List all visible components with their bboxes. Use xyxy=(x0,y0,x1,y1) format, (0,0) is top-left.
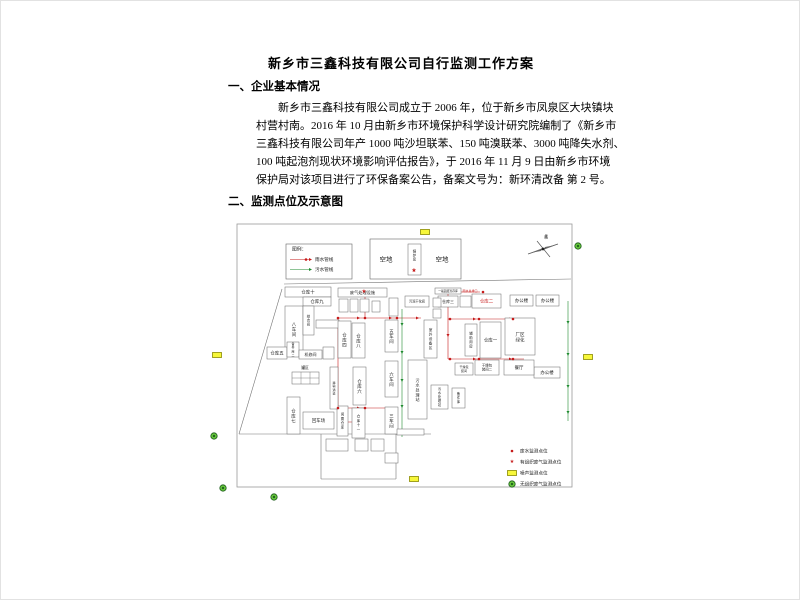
gas-marker-icon xyxy=(577,245,579,247)
dot-marker-icon xyxy=(364,407,367,410)
pipe-legend-label: 污水管线 xyxy=(315,266,334,273)
building-label: 办公楼 xyxy=(515,297,529,304)
building-label: 仓库九 xyxy=(310,298,324,305)
building-label: 污泥干化间 xyxy=(409,299,425,304)
building-label: 六车间 xyxy=(389,370,394,387)
building-label: 备件库二 xyxy=(291,341,294,357)
building-label: 仓库八 xyxy=(356,332,361,348)
gas-marker-icon xyxy=(273,496,275,498)
building-label: 五车间 xyxy=(389,328,394,344)
point-legend-label: 噪声监测点位 xyxy=(520,470,548,477)
building-label: 三车间 xyxy=(389,413,394,429)
building-box xyxy=(371,439,384,451)
building-box xyxy=(316,320,339,328)
point-legend-label: 有组织废气监测点位 xyxy=(520,459,562,466)
dot-marker-icon xyxy=(482,291,485,294)
dot-marker-icon xyxy=(512,358,515,361)
point-legend-label: 废水监测点位 xyxy=(520,448,548,455)
building-box xyxy=(326,439,348,451)
building-label: 餐厅 xyxy=(515,364,524,371)
building-label: 仓库一 xyxy=(484,337,498,344)
map-label: 北 xyxy=(544,234,548,240)
empty-lot-label: 空地 xyxy=(436,255,450,264)
building-label: 室外设备区 xyxy=(429,327,433,350)
gas-marker-icon xyxy=(213,435,215,437)
document-page: 新乡市三鑫科技有限公司自行监测工作方案 一、企业基本情况 新乡市三鑫科技有限公司… xyxy=(0,0,800,600)
dot-marker-icon xyxy=(364,317,367,320)
dot-marker-icon xyxy=(449,358,452,361)
building-box xyxy=(397,429,424,435)
noise-marker-icon xyxy=(213,353,222,358)
building-label: 仓库四 xyxy=(342,331,347,347)
building-box xyxy=(433,309,441,318)
dot-marker-icon xyxy=(305,258,308,261)
building-box xyxy=(372,301,380,312)
building-box xyxy=(339,299,348,312)
dot-marker-icon xyxy=(337,317,340,320)
noise-marker-icon xyxy=(584,355,593,360)
dot-marker-icon xyxy=(337,407,340,410)
compass-center xyxy=(542,248,545,251)
building-label: 运输通道 xyxy=(332,379,335,395)
dot-marker-icon xyxy=(449,318,452,321)
dot-marker-icon xyxy=(511,450,514,453)
star-marker-icon: ★ xyxy=(362,288,367,295)
building-box xyxy=(323,347,334,359)
dot-marker-icon xyxy=(396,317,399,320)
building-label: 仓库六 xyxy=(357,377,362,394)
building-label: 一般固废暂存库 xyxy=(438,289,458,293)
building-box xyxy=(389,298,398,316)
building-box xyxy=(350,299,358,312)
pipe-legend-title: 图例： xyxy=(292,246,306,253)
dot-marker-icon xyxy=(478,358,481,361)
dot-marker-icon xyxy=(512,318,515,321)
gas-marker-icon xyxy=(222,487,224,489)
building-label: 厂区绿化 xyxy=(516,331,525,343)
building-label: 仓库七 xyxy=(291,407,296,423)
pipe-legend: 图例：雨水管线污水管线 xyxy=(286,244,352,279)
building-box xyxy=(360,299,369,312)
dot-marker-icon xyxy=(478,318,481,321)
building-label: 机修间 xyxy=(305,351,317,357)
empty-lot-label: 空地 xyxy=(380,255,394,264)
point-legend-label: 无组织废气监测点位 xyxy=(520,481,562,488)
building-label: 仓库二 xyxy=(480,298,494,305)
building-label: 仓库五 xyxy=(270,350,284,357)
noise-marker-icon xyxy=(508,471,517,476)
building-label: 办公楼 xyxy=(541,297,555,304)
building-label: 污水处理站 xyxy=(416,376,420,401)
building-label: 仓库十 xyxy=(301,289,315,296)
noise-marker-icon xyxy=(421,230,430,235)
site-plan-diagram: 仓库十仓库九八车间综合间仓库五备件库二机修间仓库七回车场闲置仓库仓库十一运输通道… xyxy=(1,1,800,600)
star-marker-icon: ★ xyxy=(510,459,515,465)
building-box xyxy=(385,453,398,463)
building-box xyxy=(460,296,471,307)
noise-marker-icon xyxy=(410,477,419,482)
building-label: 八车间 xyxy=(292,321,297,337)
pipe-legend-label: 雨水管线 xyxy=(315,256,334,263)
map-label: 雨水总排口 xyxy=(462,288,477,293)
building-box xyxy=(433,298,441,307)
building-box xyxy=(355,439,368,451)
building-label: 干燥包装间二 xyxy=(482,362,493,371)
gas-marker-icon xyxy=(511,483,513,485)
building-label: 仓库三 xyxy=(442,298,454,304)
tank-label: 罐区 xyxy=(301,365,309,370)
star-marker-icon: ★ xyxy=(412,267,417,274)
building-label: 回车场 xyxy=(312,417,326,424)
building-label: 办公楼 xyxy=(540,369,554,376)
